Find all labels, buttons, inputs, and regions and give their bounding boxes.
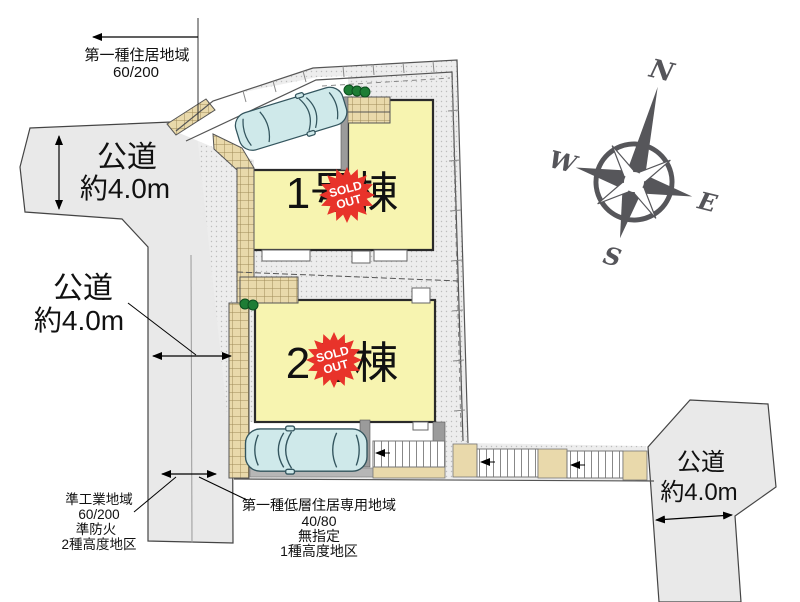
stair-flight-2	[477, 449, 538, 477]
south-zone-block: 第一種低層住居専用地域 40/80 無指定 1種高度地区	[242, 497, 396, 559]
south-zone-name: 第一種低層住居専用地域	[242, 497, 396, 513]
compass-s: S	[600, 240, 624, 272]
south-zone-fireproof: 無指定	[298, 528, 340, 544]
southwest-zone-height: 2種高度地区	[61, 536, 136, 552]
sold-out-badge-1	[319, 167, 375, 223]
north-zone-ratio: 60/200	[113, 64, 159, 81]
compass-e: E	[694, 185, 720, 218]
stair-landing-strip	[373, 467, 445, 478]
compass-rose: N S E W	[527, 36, 749, 292]
stair-landing-3	[623, 451, 647, 480]
road-width: 約4.0m	[34, 305, 124, 336]
site-plan: SOLD OUT	[0, 0, 800, 602]
stair-landing-2	[538, 449, 567, 478]
south-zone-ratio: 40/80	[301, 513, 336, 529]
southwest-zone-ratio: 60/200	[78, 507, 119, 522]
entrance-tiles-2	[240, 277, 298, 303]
stair-landing-1	[453, 444, 477, 477]
road-width: 約4.0m	[660, 479, 737, 506]
southwest-zone-block: 準工業地域 60/200 準防火 2種高度地区	[61, 492, 136, 552]
entrance-tiles-1a	[345, 97, 390, 113]
stair-flight-1	[373, 441, 445, 467]
sold-out-badge-2	[306, 332, 362, 388]
road-width: 約4.0m	[80, 173, 170, 204]
southwest-zone-name: 準工業地域	[65, 492, 133, 507]
north-zone-name: 第一種住居地域	[84, 47, 189, 64]
compass-w: W	[546, 144, 581, 179]
south-zone-height: 1種高度地区	[280, 543, 358, 559]
road-type: 公道	[97, 141, 157, 174]
road-type: 公道	[677, 449, 725, 476]
car-2	[246, 426, 368, 474]
southwest-zone-fireproof: 準防火	[76, 522, 117, 537]
road-type: 公道	[53, 272, 113, 305]
compass-n: N	[645, 54, 677, 89]
north-zone-annotation: 第一種住居地域 60/200	[84, 18, 198, 121]
compass-arms	[562, 72, 716, 252]
